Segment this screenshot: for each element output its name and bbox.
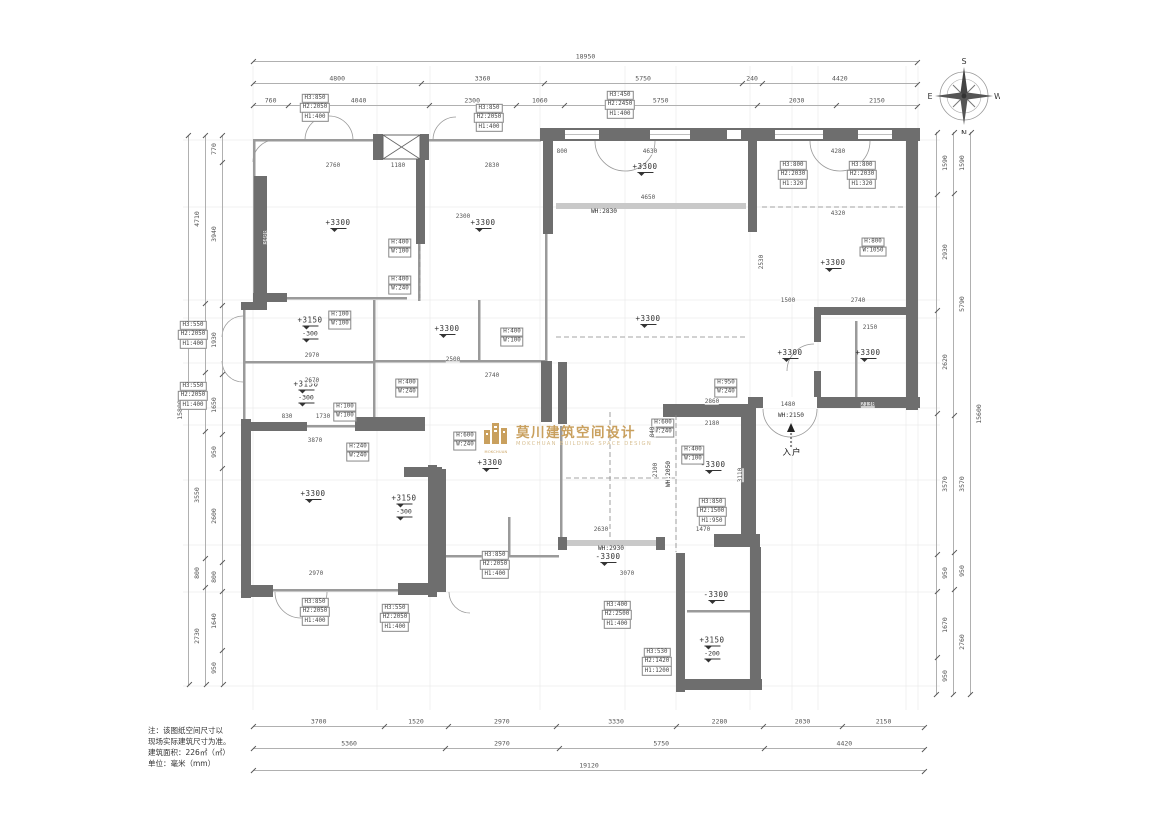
inline-dimension: 1480 — [781, 402, 795, 408]
opening-spec-box: H3:550H2:2050H1:400 — [178, 321, 208, 349]
opening-spec-line: W:240 — [453, 441, 476, 451]
opening-spec-box: H3:850H2:2050H1:400 — [300, 598, 330, 626]
opening-spec-line: W:240 — [388, 285, 411, 295]
opening-spec-line: H1:400 — [476, 122, 503, 132]
opening-spec-line: W:1050 — [860, 247, 887, 257]
inline-dimension: 2740 — [851, 298, 865, 304]
opening-spec-box: H3:850H2:2050H1:400 — [300, 94, 330, 122]
elevation-mark-icon — [439, 334, 455, 339]
opening-spec-line: W:240 — [346, 452, 369, 462]
opening-spec-line: H1:400 — [604, 619, 631, 629]
inline-dimension: 1500 — [781, 298, 795, 304]
window-height-label: WH:2050 — [666, 461, 672, 487]
opening-spec-line: H1:400 — [302, 112, 329, 122]
elevation-mark-icon — [330, 228, 346, 233]
elevation-mark-icon — [640, 324, 656, 329]
logo-chinese-name: 莫川建筑空间设计 — [516, 426, 652, 441]
opening-spec-box: H3:800H2:2030H1:320 — [847, 161, 877, 189]
room-elevation-label: +3300 — [434, 325, 459, 339]
elevation-mark-icon — [704, 659, 720, 664]
elevation-mark-icon — [475, 228, 491, 233]
opening-spec-box: H:100W:100 — [328, 311, 351, 330]
room-elevation-label: +3300 — [635, 315, 660, 329]
elevation-mark-icon — [396, 504, 412, 509]
inline-dimension: 1180 — [391, 163, 405, 169]
elevation-mark-icon — [860, 358, 876, 363]
inline-dimension: 830 — [282, 414, 293, 420]
opening-spec-box: H:240W:240 — [346, 443, 369, 462]
logo-text-block: 莫川建筑空间设计 MOKCHUAN BUILDING SPACE DESIGN — [516, 426, 652, 448]
floorplan-sheet: S N E W 18950480033605750240442076040402… — [0, 0, 1150, 813]
opening-spec-line: H2:2050 — [480, 560, 510, 570]
entry-label: 入户 — [782, 446, 801, 458]
opening-spec-box: H3:550H2:2050H1:400 — [178, 382, 208, 410]
opening-spec-line: H:600 — [453, 431, 476, 441]
elevation-mark-icon — [704, 646, 720, 651]
elevation-mark-icon — [298, 403, 314, 408]
room-elevation-label: -3300 — [703, 591, 728, 605]
opening-spec-box: H3:530H2:1420H1:1200 — [642, 648, 672, 676]
room-elevation-label: +3150-200 — [699, 637, 724, 664]
opening-spec-line: H:100 — [328, 310, 351, 320]
opening-spec-line: H2:2050 — [178, 391, 208, 401]
opening-spec-line: W:100 — [328, 320, 351, 330]
opening-spec-box: H3:450H2:2450H1:400 — [605, 91, 635, 119]
elevation-mark-icon — [705, 470, 721, 475]
opening-spec-line: H2:2450 — [605, 100, 635, 110]
opening-spec-line: W:100 — [388, 248, 411, 258]
opening-spec-line: W:100 — [681, 455, 704, 465]
inline-dimension: 2150 — [863, 325, 877, 331]
opening-spec-box: H:100W:100 — [333, 403, 356, 422]
opening-spec-line: H:400 — [500, 327, 523, 337]
elevation-mark-icon — [396, 517, 412, 522]
inline-dimension: 800 — [557, 149, 568, 155]
logo-icon-caption: MOKCHUAN — [482, 450, 510, 454]
elevation-mark-icon — [825, 268, 841, 273]
opening-spec-line: H3:850 — [476, 103, 503, 113]
inline-dimension: 2300 — [456, 214, 470, 220]
opening-spec-box: H3:550H2:2050H1:400 — [380, 604, 410, 632]
opening-spec-box: H:400W:100 — [681, 446, 704, 465]
window-height-label: WH:2930 — [598, 546, 624, 552]
window-height-label: WH:2150 — [778, 413, 804, 419]
opening-spec-line: H3:400 — [604, 600, 631, 610]
elevation-mark-icon — [600, 562, 616, 567]
room-elevation-label: +3150-300 — [391, 495, 416, 522]
opening-spec-line: H1:400 — [180, 339, 207, 349]
inline-dimension: 3110 — [738, 468, 744, 482]
inline-dimension: 3070 — [620, 571, 634, 577]
opening-spec-box: H:400W:240 — [388, 276, 411, 295]
inline-dimension: 3870 — [308, 438, 322, 444]
opening-spec-line: W:100 — [333, 412, 356, 422]
opening-spec-line: H2:2050 — [474, 113, 504, 123]
elevation-mark-icon — [298, 390, 314, 395]
opening-spec-line: H1:1200 — [642, 666, 672, 676]
room-elevation-label: +3300 — [300, 490, 325, 504]
opening-spec-line: H2:2050 — [178, 330, 208, 340]
opening-spec-line: H:800 — [861, 237, 884, 247]
inline-dimension: 4650 — [641, 195, 655, 201]
opening-spec-line: H3:550 — [382, 603, 409, 613]
inline-dimension: 4630 — [643, 149, 657, 155]
opening-spec-line: H2:2050 — [380, 613, 410, 623]
inline-dimension: 2970 — [309, 571, 323, 577]
opening-spec-line: W:240 — [395, 388, 418, 398]
opening-spec-line: H3:800 — [780, 160, 807, 170]
opening-spec-line: H2:1420 — [642, 657, 672, 667]
logo-buildings-icon: MOKCHUAN — [482, 420, 510, 454]
inline-dimension: 1730 — [316, 414, 330, 420]
inline-dimension: 2860 — [705, 399, 719, 405]
opening-spec-line: H:400 — [388, 275, 411, 285]
inline-dimension: 2670 — [305, 378, 319, 384]
room-elevation-label: +3300 — [470, 219, 495, 233]
inline-dimension: 3400 — [263, 230, 269, 244]
room-elevation-label: +3300 — [820, 259, 845, 273]
opening-spec-line: H3:850 — [302, 93, 329, 103]
inline-dimension: 2740 — [485, 373, 499, 379]
opening-spec-line: H1:400 — [302, 616, 329, 626]
opening-spec-line: H2:2030 — [847, 170, 877, 180]
plan-annotations: +3300+3300+3300+3300+3300+3300+3300+3150… — [0, 0, 1150, 813]
elevation-mark-icon — [637, 172, 653, 177]
room-elevation-label: +3300 — [632, 163, 657, 177]
inline-dimension: 2180 — [705, 421, 719, 427]
opening-spec-line: H1:320 — [780, 179, 807, 189]
opening-spec-line: H1:400 — [482, 569, 509, 579]
room-elevation-label: -3300 — [595, 553, 620, 567]
opening-spec-line: H3:550 — [180, 381, 207, 391]
opening-spec-line: H1:400 — [607, 109, 634, 119]
opening-spec-line: H3:530 — [644, 647, 671, 657]
opening-spec-line: H3:800 — [849, 160, 876, 170]
elevation-mark-icon — [708, 600, 724, 605]
elevation-mark-icon — [302, 339, 318, 344]
elevation-mark-icon — [302, 326, 318, 331]
opening-spec-line: H1:400 — [180, 400, 207, 410]
opening-spec-line: H3:850 — [699, 497, 726, 507]
opening-spec-line: H:400 — [395, 378, 418, 388]
elevation-mark-icon — [782, 358, 798, 363]
inline-dimension: 2130 — [861, 402, 875, 408]
opening-spec-box: H:950W:240 — [714, 379, 737, 398]
elevation-mark-icon — [305, 499, 321, 504]
inline-dimension: 1470 — [696, 527, 710, 533]
opening-spec-line: H2:1500 — [697, 507, 727, 517]
opening-spec-box: H:800W:1050 — [860, 238, 887, 257]
room-elevation-label: +3150-300 — [293, 381, 318, 408]
opening-spec-line: H3:450 — [607, 90, 634, 100]
opening-spec-line: H3:850 — [302, 597, 329, 607]
room-elevation-label: +3300 — [777, 349, 802, 363]
room-elevation-label: +3300 — [855, 349, 880, 363]
inline-dimension: 2830 — [485, 163, 499, 169]
logo-english-name: MOKCHUAN BUILDING SPACE DESIGN — [516, 441, 652, 448]
opening-spec-line: H:240 — [346, 442, 369, 452]
opening-spec-box: H:400W:100 — [500, 328, 523, 347]
opening-spec-box: H:400W:100 — [388, 239, 411, 258]
opening-spec-line: H1:400 — [382, 622, 409, 632]
opening-spec-box: H3:850H2:2050H1:400 — [474, 104, 504, 132]
inline-dimension: 4280 — [831, 149, 845, 155]
inline-dimension: 2760 — [326, 163, 340, 169]
room-elevation-label: +3150-300 — [297, 317, 322, 344]
opening-spec-line: H3:850 — [482, 550, 509, 560]
opening-spec-box: H3:850H2:2050H1:400 — [480, 551, 510, 579]
opening-spec-box: H3:400H2:2500H1:400 — [602, 601, 632, 629]
opening-spec-line: H:950 — [714, 378, 737, 388]
opening-spec-box: H3:850H2:1500H1:950 — [697, 498, 727, 526]
opening-spec-line: H2:2050 — [300, 103, 330, 113]
opening-spec-line: H1:950 — [699, 516, 726, 526]
opening-spec-line: H:400 — [388, 238, 411, 248]
opening-spec-line: W:240 — [714, 388, 737, 398]
inline-dimension: 4320 — [831, 211, 845, 217]
inline-dimension: 2970 — [305, 353, 319, 359]
opening-spec-line: H2:2050 — [300, 607, 330, 617]
opening-spec-line: H3:550 — [180, 320, 207, 330]
opening-spec-line: H2:2500 — [602, 610, 632, 620]
studio-logo: MOKCHUAN 莫川建筑空间设计 MOKCHUAN BUILDING SPAC… — [482, 420, 652, 454]
opening-spec-line: H1:320 — [849, 179, 876, 189]
inline-dimension: 2500 — [446, 357, 460, 363]
room-elevation-label: +3300 — [325, 219, 350, 233]
window-height-label: WH:2830 — [591, 209, 617, 215]
inline-dimension: 2630 — [594, 527, 608, 533]
inline-dimension: 2100 — [653, 463, 659, 477]
room-elevation-label: +3300 — [477, 459, 502, 473]
opening-spec-line: H2:2030 — [778, 170, 808, 180]
opening-spec-box: H:400W:240 — [395, 379, 418, 398]
opening-spec-box: H3:800H2:2030H1:320 — [778, 161, 808, 189]
elevation-mark-icon — [482, 468, 498, 473]
opening-spec-line: H:100 — [333, 402, 356, 412]
opening-spec-line: W:100 — [500, 337, 523, 347]
inline-dimension: 2530 — [759, 255, 765, 269]
opening-spec-line: H:400 — [681, 445, 704, 455]
opening-spec-box: H:600W:240 — [453, 432, 476, 451]
